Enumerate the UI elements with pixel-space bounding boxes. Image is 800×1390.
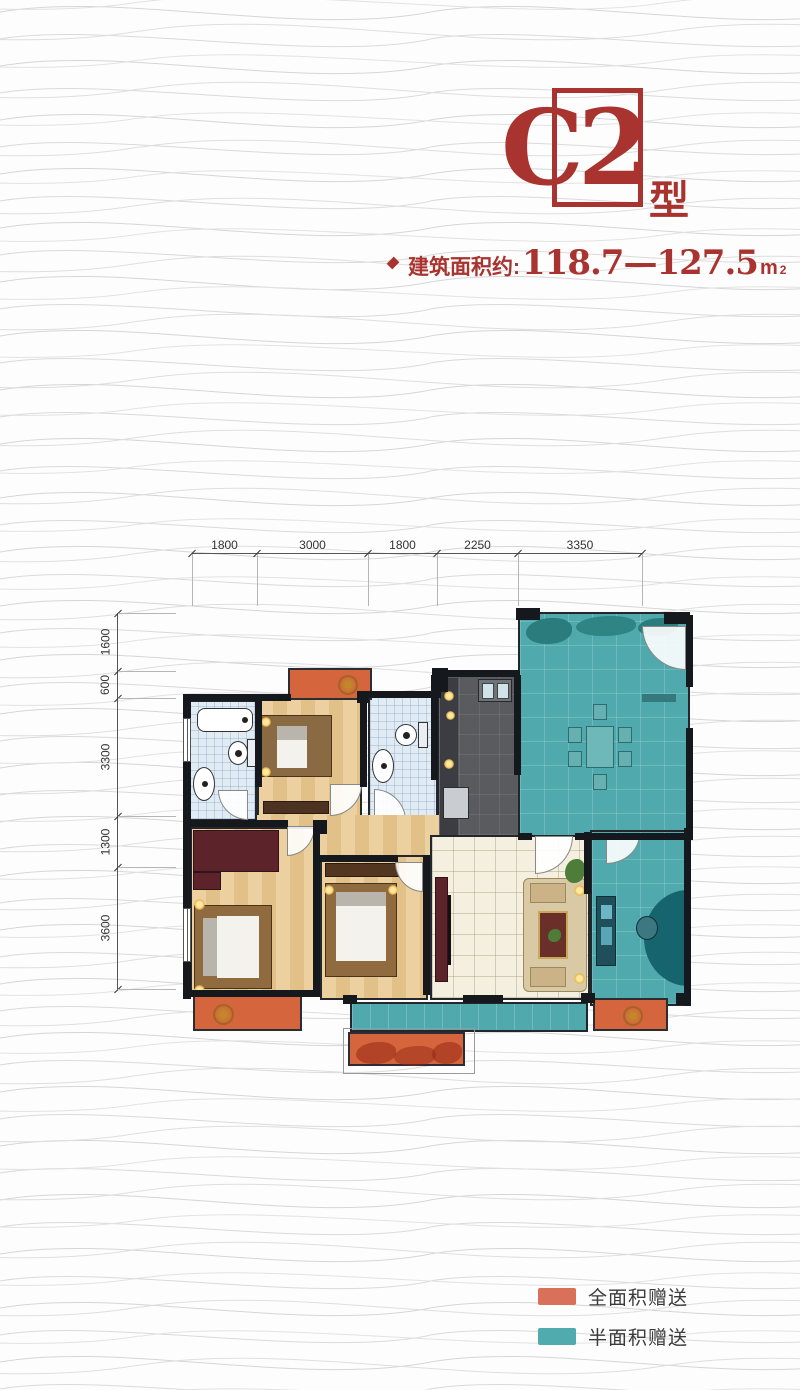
dim-segment: 1300 bbox=[96, 816, 114, 867]
dim-segment: 3600 bbox=[96, 867, 114, 989]
extension-line bbox=[257, 554, 258, 606]
wall bbox=[343, 995, 357, 1004]
plan-type-suffix: 型 bbox=[649, 168, 689, 226]
window-mullion bbox=[187, 719, 188, 761]
kitchen-sink bbox=[478, 679, 512, 702]
bed-blanket bbox=[217, 916, 259, 978]
living-room bbox=[430, 835, 590, 1000]
plant-icon bbox=[576, 616, 636, 636]
plant-icon bbox=[526, 618, 572, 644]
balcony-cabinet bbox=[596, 896, 616, 966]
sink-icon bbox=[193, 767, 215, 801]
dimension-chain-top: 1800 3000 1800 2250 3350 bbox=[192, 538, 642, 608]
dresser bbox=[263, 801, 329, 814]
window bbox=[183, 908, 191, 962]
tv-screen bbox=[448, 895, 451, 965]
bed bbox=[325, 883, 397, 977]
bedside-lamp bbox=[324, 885, 334, 895]
dimension-line bbox=[192, 553, 642, 554]
extension-line bbox=[192, 554, 193, 606]
wall bbox=[514, 675, 521, 775]
toilet-tank bbox=[418, 722, 428, 748]
toilet-icon bbox=[395, 724, 417, 746]
bathtub bbox=[197, 708, 253, 732]
toilet-drain bbox=[235, 750, 242, 757]
area-label: 建筑面积约: bbox=[408, 251, 520, 281]
wall-shelf bbox=[642, 694, 676, 702]
planter-shrubs bbox=[394, 1046, 436, 1066]
building-area-line: 建筑面积约: 118.7—127.5 m 2 bbox=[388, 243, 786, 283]
extension-line bbox=[642, 554, 643, 606]
planter-shrubs bbox=[432, 1042, 462, 1064]
wall bbox=[686, 728, 693, 840]
extension-line bbox=[437, 554, 438, 606]
bathtub-drain bbox=[242, 717, 248, 723]
bathroom-1 bbox=[188, 700, 257, 821]
dining-chair bbox=[593, 774, 607, 790]
extension-line bbox=[118, 867, 176, 868]
dim-segment: 600 bbox=[96, 671, 114, 698]
compass-ornament-icon bbox=[213, 1004, 234, 1025]
dining-chair bbox=[618, 751, 632, 767]
extension-line bbox=[118, 698, 176, 699]
dining-table bbox=[586, 726, 614, 768]
wall bbox=[584, 832, 591, 894]
wall bbox=[188, 820, 288, 827]
area-range-value: 118.7—127.5 bbox=[522, 243, 758, 283]
bed-pillows bbox=[203, 918, 217, 976]
wall bbox=[360, 697, 367, 787]
extension-line bbox=[118, 671, 176, 672]
entry-door-arc bbox=[642, 626, 686, 670]
kitchen bbox=[437, 675, 520, 837]
full-area-swatch bbox=[538, 1288, 576, 1305]
dimension-chain-left: 1600 600 3300 1300 3600 bbox=[96, 613, 176, 989]
extension-line bbox=[118, 989, 176, 990]
floor-lamp bbox=[574, 973, 585, 984]
extension-line bbox=[118, 816, 176, 817]
coffee-table bbox=[538, 911, 568, 959]
leisure-balcony bbox=[590, 830, 686, 1006]
cabinet-detail bbox=[601, 927, 612, 945]
dim-segment: 1800 bbox=[368, 538, 437, 552]
toilet-drain bbox=[403, 732, 410, 739]
wall bbox=[255, 697, 262, 787]
wall bbox=[423, 855, 430, 995]
bed bbox=[194, 905, 272, 989]
wardrobe bbox=[193, 872, 221, 890]
wall bbox=[365, 691, 441, 698]
bedside-lamp bbox=[194, 899, 205, 910]
sink-basin bbox=[482, 683, 494, 699]
wall bbox=[575, 833, 690, 840]
sink-drain bbox=[381, 763, 387, 769]
compass-ornament-icon bbox=[338, 675, 358, 695]
legend: 全面积赠送 半面积赠送 bbox=[538, 1283, 688, 1363]
bedside-lamp bbox=[261, 717, 271, 727]
wall bbox=[516, 608, 540, 620]
bed-blanket bbox=[336, 906, 386, 961]
wall bbox=[518, 833, 532, 840]
cabinet-detail bbox=[601, 905, 612, 919]
wall bbox=[686, 615, 693, 687]
compass-ornament-icon bbox=[623, 1006, 643, 1026]
chair-seat bbox=[636, 916, 658, 940]
dim-segment: 1600 bbox=[96, 613, 114, 671]
counter-light bbox=[446, 711, 455, 720]
extension-line bbox=[368, 554, 369, 606]
wardrobe bbox=[193, 830, 279, 872]
window bbox=[183, 718, 191, 762]
dim-segment: 1800 bbox=[192, 538, 257, 552]
gift-balcony-right bbox=[593, 998, 668, 1031]
wall bbox=[183, 694, 291, 701]
bed-pillows bbox=[336, 892, 386, 906]
floorplan-page: { "title": { "code": "C2", "suffix": "型"… bbox=[0, 0, 800, 1390]
wall bbox=[320, 855, 398, 862]
bed bbox=[260, 715, 332, 777]
wall bbox=[432, 670, 520, 677]
sofa-set bbox=[523, 878, 587, 992]
wall bbox=[431, 675, 438, 780]
dining-chair bbox=[568, 751, 582, 767]
counter-light bbox=[444, 691, 454, 701]
wall bbox=[313, 827, 320, 997]
terrace-dining-room bbox=[518, 612, 690, 840]
sink-drain bbox=[202, 781, 208, 787]
legend-item-half-area: 半面积赠送 bbox=[538, 1323, 688, 1350]
legend-item-full-area: 全面积赠送 bbox=[538, 1283, 688, 1310]
toilet-icon bbox=[228, 741, 248, 765]
dim-segment: 3300 bbox=[96, 698, 114, 816]
legend-label: 半面积赠送 bbox=[588, 1323, 688, 1350]
table-plant-icon bbox=[548, 929, 561, 942]
refrigerator bbox=[443, 787, 469, 819]
dining-chair bbox=[618, 727, 632, 743]
tv-cabinet bbox=[435, 877, 448, 982]
plan-type-code: C2 bbox=[501, 92, 644, 204]
extension-line bbox=[518, 554, 519, 606]
window-mullion bbox=[187, 909, 188, 961]
extension-line bbox=[118, 613, 176, 614]
wardrobe bbox=[325, 863, 399, 877]
sink-icon bbox=[372, 749, 394, 783]
wall bbox=[676, 993, 690, 1005]
wall bbox=[188, 990, 316, 997]
gift-planter-box bbox=[348, 1032, 465, 1066]
dining-chair bbox=[568, 727, 582, 743]
bed-pillows bbox=[277, 726, 307, 740]
legend-label: 全面积赠送 bbox=[588, 1283, 688, 1310]
wall bbox=[581, 993, 595, 1003]
wall bbox=[684, 828, 691, 1006]
planter-shrubs bbox=[356, 1042, 396, 1064]
gift-balcony-left bbox=[193, 995, 302, 1031]
armchair bbox=[530, 883, 566, 903]
bed-blanket bbox=[277, 740, 307, 768]
sink-basin bbox=[497, 683, 509, 699]
dim-segment: 3000 bbox=[257, 538, 368, 552]
floor-plan bbox=[183, 608, 695, 1078]
dining-chair bbox=[593, 704, 607, 720]
bathroom-2 bbox=[368, 695, 438, 820]
bedside-lamp bbox=[388, 885, 398, 895]
wall bbox=[463, 995, 503, 1003]
dim-segment: 3350 bbox=[518, 538, 642, 552]
armchair bbox=[530, 967, 566, 987]
area-unit: m bbox=[760, 257, 778, 280]
counter-light bbox=[444, 759, 454, 769]
dim-segment: 2250 bbox=[437, 538, 518, 552]
area-unit-superscript: 2 bbox=[780, 263, 787, 277]
half-area-swatch bbox=[538, 1328, 576, 1345]
bedside-lamp bbox=[261, 767, 271, 777]
diamond-bullet-icon bbox=[387, 257, 400, 270]
bathroom-door-arc bbox=[218, 790, 248, 820]
